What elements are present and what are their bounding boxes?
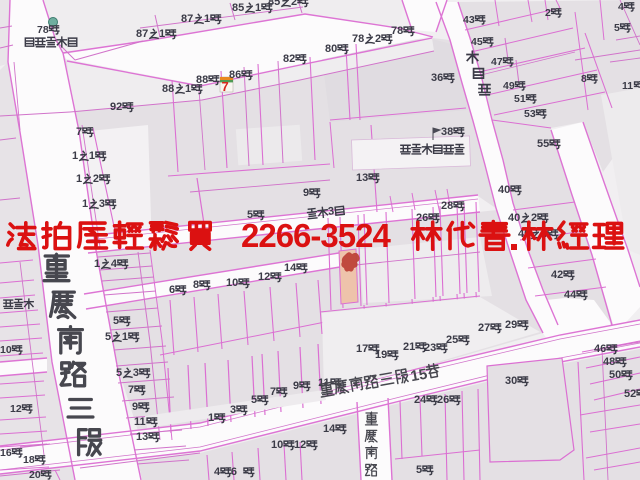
svg-text:6: 6 — [231, 466, 237, 478]
svg-text:82: 82 — [283, 53, 295, 65]
svg-text:12: 12 — [258, 271, 270, 283]
svg-text:7: 7 — [128, 384, 134, 396]
svg-text:2: 2 — [545, 7, 551, 19]
svg-text:40: 40 — [508, 212, 520, 224]
svg-text:27: 27 — [478, 322, 490, 334]
svg-text:3: 3 — [133, 367, 139, 379]
svg-text:30: 30 — [505, 375, 517, 387]
svg-text:12: 12 — [294, 439, 306, 451]
svg-text:47: 47 — [491, 56, 503, 68]
svg-text:5: 5 — [251, 394, 257, 406]
svg-text:5: 5 — [416, 464, 422, 476]
svg-text:23: 23 — [424, 342, 436, 354]
svg-text:42: 42 — [551, 269, 563, 281]
svg-text:88: 88 — [196, 74, 208, 86]
svg-text:4: 4 — [618, 1, 624, 13]
svg-text:88: 88 — [162, 83, 174, 95]
svg-text:1: 1 — [89, 150, 95, 162]
svg-text:10: 10 — [271, 439, 283, 451]
svg-text:85: 85 — [232, 2, 244, 14]
svg-text:6: 6 — [169, 284, 175, 296]
svg-text:49: 49 — [503, 80, 515, 92]
svg-text:1: 1 — [159, 28, 165, 40]
svg-text:50: 50 — [609, 369, 621, 381]
svg-text:87: 87 — [136, 28, 148, 40]
svg-text:13: 13 — [356, 172, 368, 184]
svg-text:1: 1 — [76, 173, 82, 185]
svg-text:25: 25 — [446, 334, 458, 346]
svg-text:87: 87 — [181, 13, 193, 25]
svg-text:86: 86 — [229, 69, 241, 81]
svg-text:1: 1 — [204, 13, 210, 25]
svg-text:78: 78 — [37, 24, 49, 36]
svg-text:9: 9 — [303, 187, 309, 199]
svg-text:44: 44 — [564, 289, 577, 301]
svg-text:5: 5 — [614, 22, 620, 34]
svg-text:43: 43 — [463, 14, 475, 26]
svg-text:2: 2 — [93, 173, 99, 185]
svg-text:1: 1 — [82, 198, 88, 210]
svg-text:3: 3 — [230, 404, 236, 416]
svg-text:19: 19 — [375, 349, 387, 361]
svg-text:1: 1 — [72, 150, 78, 162]
svg-text:36: 36 — [431, 72, 443, 84]
svg-text:10: 10 — [0, 344, 12, 356]
svg-text:78: 78 — [352, 33, 364, 45]
svg-text:45: 45 — [471, 36, 483, 48]
svg-text:13: 13 — [136, 431, 148, 443]
svg-text:11: 11 — [622, 80, 633, 92]
svg-text:20: 20 — [29, 469, 41, 480]
svg-text:4: 4 — [214, 466, 221, 478]
svg-text:40: 40 — [498, 184, 510, 196]
svg-text:5: 5 — [105, 331, 111, 343]
svg-text:2: 2 — [291, 0, 297, 8]
svg-text:7: 7 — [76, 126, 82, 138]
svg-text:2: 2 — [531, 212, 537, 224]
svg-text:7: 7 — [222, 79, 229, 94]
svg-text:7: 7 — [270, 386, 276, 398]
svg-text:5: 5 — [113, 315, 119, 327]
svg-text:2: 2 — [375, 33, 381, 45]
svg-text:80: 80 — [325, 43, 337, 55]
svg-text:18: 18 — [23, 454, 35, 466]
svg-text:92: 92 — [110, 101, 122, 113]
svg-text:12: 12 — [10, 403, 22, 415]
svg-text:9: 9 — [293, 380, 299, 392]
svg-text:38: 38 — [441, 126, 453, 138]
svg-text:10: 10 — [226, 277, 238, 289]
svg-text:14: 14 — [284, 262, 297, 274]
svg-text:29: 29 — [505, 319, 517, 331]
svg-text:1: 1 — [255, 2, 261, 14]
svg-text:1: 1 — [208, 412, 214, 424]
svg-text:52: 52 — [624, 388, 636, 400]
svg-text:1: 1 — [122, 331, 128, 343]
svg-text:8: 8 — [581, 73, 587, 85]
svg-text:55: 55 — [537, 138, 549, 150]
svg-text:48: 48 — [603, 356, 615, 368]
svg-text:85: 85 — [268, 0, 280, 8]
svg-text:17: 17 — [356, 343, 368, 355]
svg-text:14: 14 — [323, 423, 336, 435]
svg-text:1: 1 — [185, 83, 191, 95]
svg-text:2266-3524: 2266-3524 — [241, 217, 391, 254]
svg-text:53: 53 — [524, 108, 536, 120]
svg-text:78: 78 — [391, 25, 403, 37]
svg-text:3: 3 — [328, 205, 335, 218]
svg-text:11: 11 — [134, 416, 146, 428]
svg-text:16: 16 — [0, 447, 12, 459]
svg-text:46: 46 — [594, 343, 606, 355]
svg-text:4: 4 — [111, 258, 118, 270]
svg-text:3: 3 — [99, 198, 105, 210]
svg-text:9: 9 — [132, 401, 138, 413]
svg-text:5: 5 — [116, 367, 122, 379]
svg-text:51: 51 — [514, 93, 526, 105]
svg-text:8: 8 — [193, 279, 199, 291]
svg-text:24: 24 — [414, 394, 427, 406]
svg-text:26: 26 — [437, 394, 449, 406]
svg-text:15: 15 — [409, 366, 428, 386]
svg-text:21: 21 — [403, 341, 415, 353]
svg-text:28: 28 — [441, 200, 453, 212]
svg-text:1: 1 — [94, 258, 100, 270]
